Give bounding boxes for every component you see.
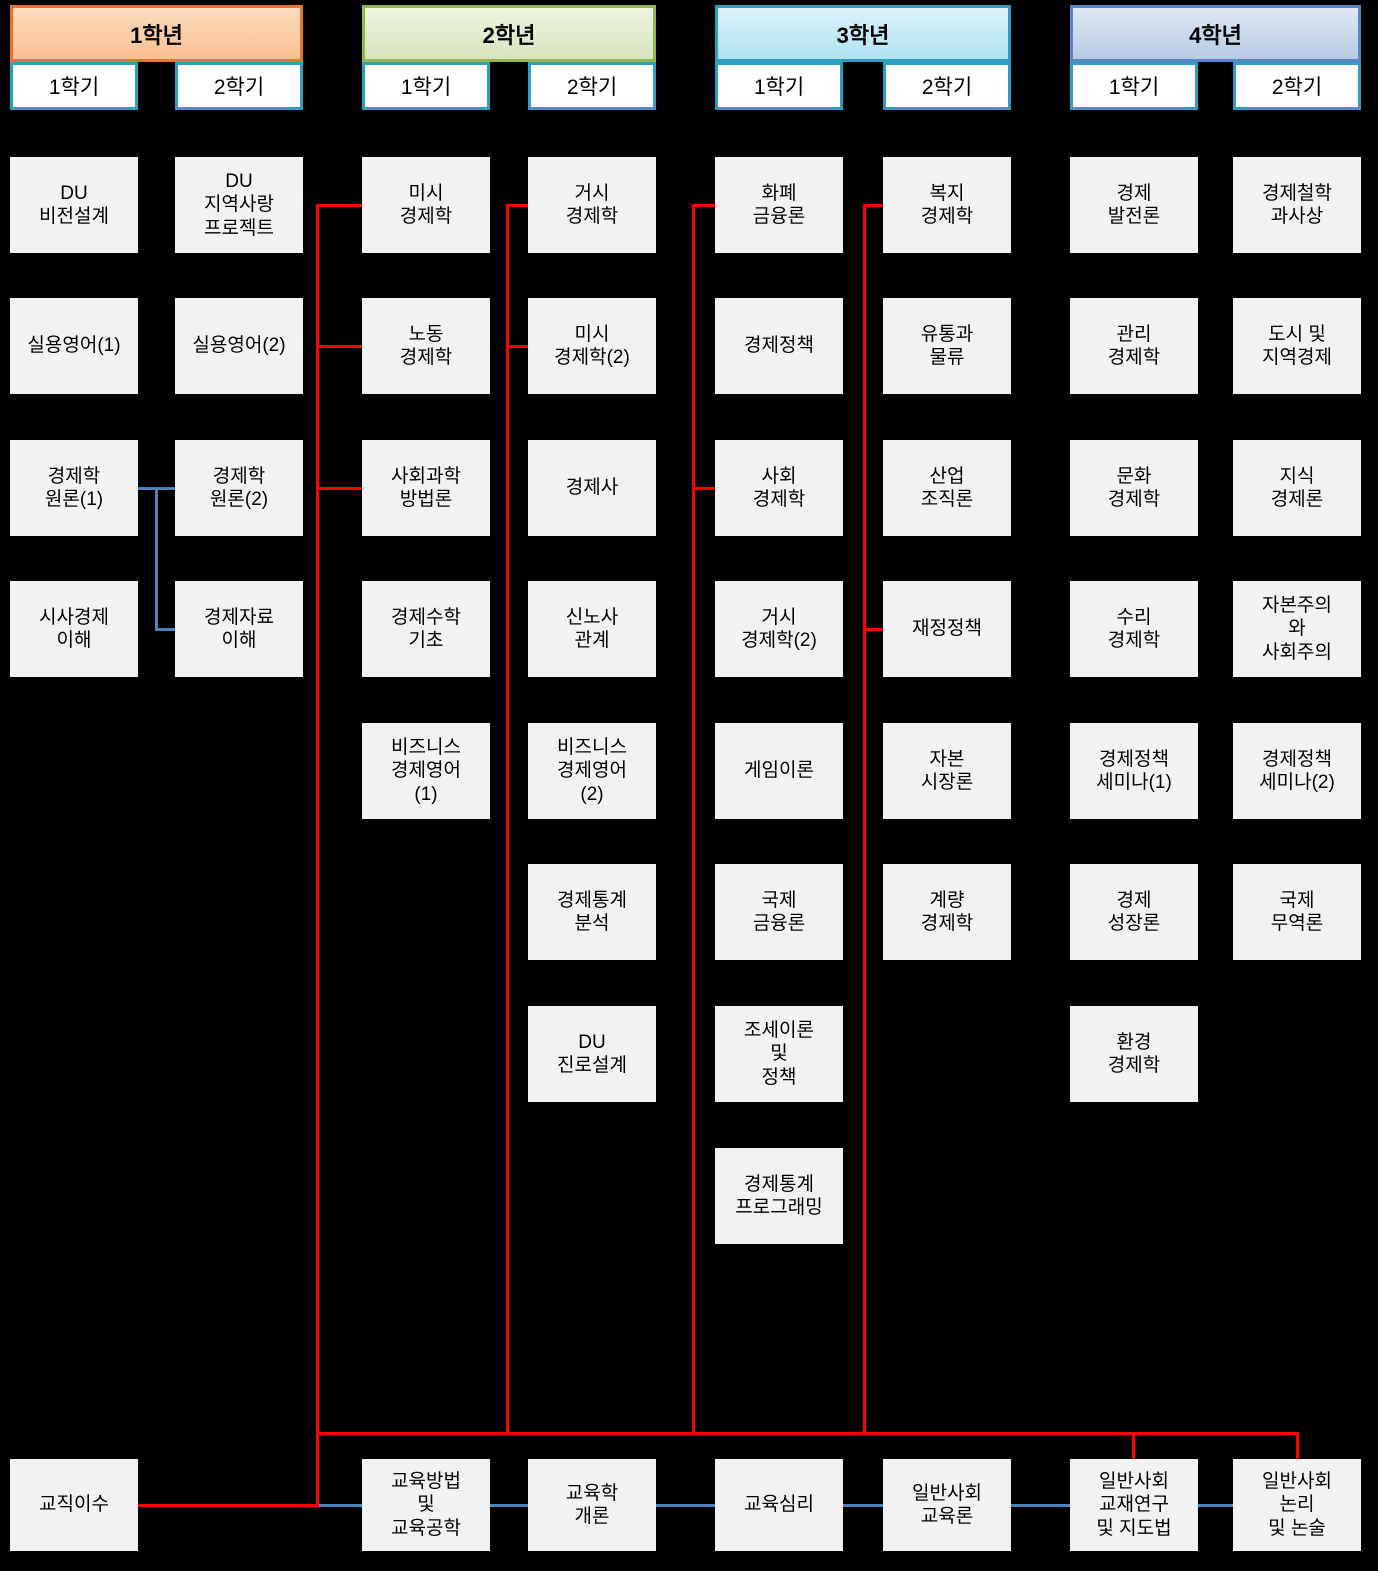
teaching-course-box: 일반사회 논리 및 논술 — [1233, 1459, 1361, 1551]
semester-header-y1-s1: 1학기 — [10, 62, 138, 110]
course-box: 경제자료 이해 — [175, 581, 303, 677]
course-box: 지식 경제론 — [1233, 440, 1361, 536]
connector-drop-wonron — [155, 487, 158, 631]
course-box: 국제 무역론 — [1233, 864, 1361, 960]
semester-header-y1-s2: 2학기 — [175, 62, 303, 110]
course-box: 경제정책 세미나(1) — [1070, 723, 1198, 819]
course-box: 화폐 금융론 — [715, 157, 843, 253]
connector-chain-bottom-2 — [490, 1504, 528, 1507]
connector-stub-hwapye-geumyungnon — [695, 204, 715, 207]
course-box: DU 진로설계 — [528, 1006, 656, 1102]
course-box: DU 지역사랑 프로젝트 — [175, 157, 303, 253]
teaching-course-box: 교육심리 — [715, 1459, 843, 1551]
connector-vbus-2 — [506, 204, 509, 1435]
teaching-course-box: 일반사회 교재연구 및 지도법 — [1070, 1459, 1198, 1551]
connector-stub-gyeongjejaryo — [158, 628, 175, 631]
connector-chain-bottom-5 — [1011, 1504, 1070, 1507]
connector-stub-nodong-gyeongjehak — [319, 345, 362, 348]
course-box: 실용영어(1) — [10, 298, 138, 394]
course-box: 경제통계 분석 — [528, 864, 656, 960]
curriculum-flowchart: 1학년 2학년 3학년 4학년 1학기 2학기 1학기 2학기 1학기 2학기 … — [0, 0, 1378, 1571]
course-box: 조세이론 및 정책 — [715, 1006, 843, 1102]
course-box: 계량 경제학 — [883, 864, 1011, 960]
course-box: 유통과 물류 — [883, 298, 1011, 394]
course-box: 자본 시장론 — [883, 723, 1011, 819]
course-box: 경제통계 프로그래밍 — [715, 1148, 843, 1244]
semester-header-y2-s2: 2학기 — [528, 62, 656, 110]
connector-vbus-4 — [863, 204, 866, 1435]
connector-chain-bottom-6 — [1198, 1504, 1233, 1507]
course-box: 경제학 원론(2) — [175, 440, 303, 536]
course-box: 실용영어(2) — [175, 298, 303, 394]
year-header-2: 2학년 — [362, 5, 656, 62]
semester-header-y4-s2: 2학기 — [1233, 62, 1361, 110]
course-box: 복지 경제학 — [883, 157, 1011, 253]
course-box: 도시 및 지역경제 — [1233, 298, 1361, 394]
connector-chain-bottom-1 — [319, 1504, 362, 1507]
course-box: 미시 경제학 — [362, 157, 490, 253]
connector-stub-jaejeong-jeongchaek — [866, 628, 883, 631]
course-box: 경제학 원론(1) — [10, 440, 138, 536]
connector-chain-bottom-3 — [656, 1504, 715, 1507]
teaching-course-box: 일반사회 교육론 — [883, 1459, 1011, 1551]
connector-stub-misi-gyeongjehak-2 — [509, 345, 528, 348]
connector-chain-bottom-4 — [843, 1504, 883, 1507]
year-header-3: 3학년 — [715, 5, 1011, 62]
course-box: 사회 경제학 — [715, 440, 843, 536]
course-box: 환경 경제학 — [1070, 1006, 1198, 1102]
year-header-1: 1학년 — [10, 5, 303, 62]
course-box: 문화 경제학 — [1070, 440, 1198, 536]
semester-header-y3-s1: 1학기 — [715, 62, 843, 110]
course-box: 경제정책 — [715, 298, 843, 394]
semester-header-y4-s1: 1학기 — [1070, 62, 1198, 110]
course-box: 비즈니스 경제영어 (2) — [528, 723, 656, 819]
connector-vbus-3 — [692, 204, 695, 1435]
connector-stub-sahoegwahak-bangbeomnon — [319, 487, 362, 490]
semester-header-y3-s2: 2학기 — [883, 62, 1011, 110]
connector-stub-sahoe-gyeongjehak — [695, 487, 715, 490]
course-box: 경제 성장론 — [1070, 864, 1198, 960]
connector-link-gyojik-isu — [138, 1504, 316, 1507]
year-header-4: 4학년 — [1070, 5, 1361, 62]
course-box: 관리 경제학 — [1070, 298, 1198, 394]
connector-stub-bokji-gyeongjehak — [866, 204, 883, 207]
course-box: 재정정책 — [883, 581, 1011, 677]
connector-drop-gyojaeyeongu — [1132, 1432, 1135, 1459]
semester-header-y2-s1: 1학기 — [362, 62, 490, 110]
teaching-course-box: 교육학 개론 — [528, 1459, 656, 1551]
course-box: 비즈니스 경제영어 (1) — [362, 723, 490, 819]
course-box: 거시 경제학 — [528, 157, 656, 253]
course-box: 수리 경제학 — [1070, 581, 1198, 677]
connector-vbus-1 — [316, 204, 319, 1507]
teaching-course-box: 교육방법 및 교육공학 — [362, 1459, 490, 1551]
course-box: 노동 경제학 — [362, 298, 490, 394]
course-box: 경제수학 기초 — [362, 581, 490, 677]
course-box: 사회과학 방법론 — [362, 440, 490, 536]
course-box: 거시 경제학(2) — [715, 581, 843, 677]
course-box: 경제정책 세미나(2) — [1233, 723, 1361, 819]
teaching-certification-box: 교직이수 — [10, 1459, 138, 1551]
course-box: 경제사 — [528, 440, 656, 536]
connector-stub-geosi-gyeongjehak — [509, 204, 528, 207]
course-box: 산업 조직론 — [883, 440, 1011, 536]
course-box: DU 비전설계 — [10, 157, 138, 253]
course-box: 게임이론 — [715, 723, 843, 819]
connector-stub-misi-gyeongjehak — [319, 204, 362, 207]
connector-drop-nonri-nonsul — [1296, 1432, 1299, 1459]
course-box: 시사경제 이해 — [10, 581, 138, 677]
course-box: 국제 금융론 — [715, 864, 843, 960]
course-box: 경제 발전론 — [1070, 157, 1198, 253]
course-box: 미시 경제학(2) — [528, 298, 656, 394]
course-box: 자본주의 와 사회주의 — [1233, 581, 1361, 677]
connector-hbus-bottom — [316, 1432, 1299, 1435]
course-box: 경제철학 과사상 — [1233, 157, 1361, 253]
course-box: 신노사 관계 — [528, 581, 656, 677]
